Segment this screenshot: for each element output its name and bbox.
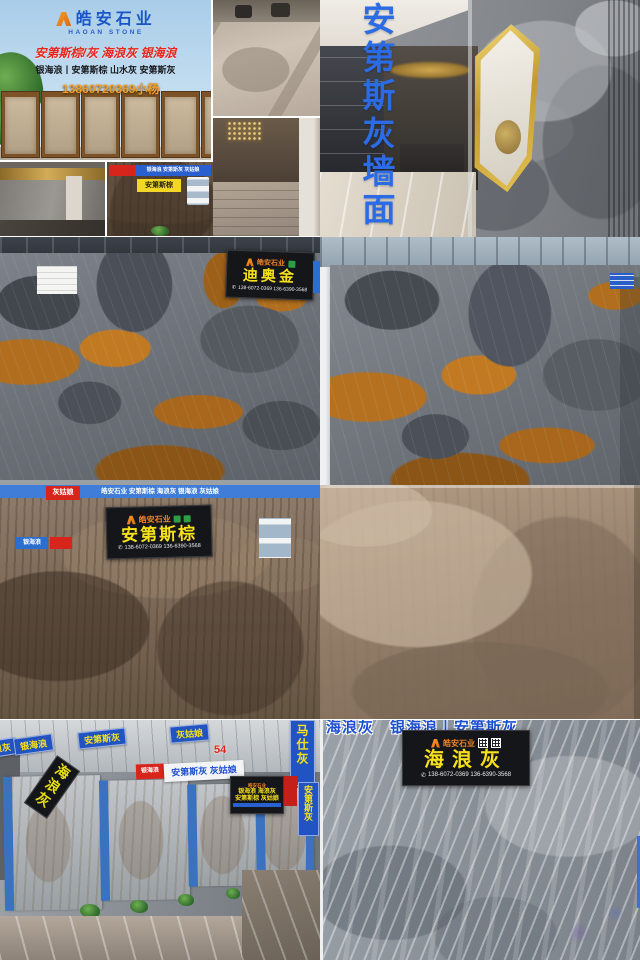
photo-seam	[320, 720, 323, 960]
phone-icon: ✆	[232, 285, 236, 291]
corridor-floor	[320, 172, 476, 237]
sign-footer-strip	[233, 803, 281, 807]
andes-grey-wall-photo: 安第斯灰墙面	[320, 0, 640, 237]
badge-icon	[174, 515, 181, 522]
red-tag-small	[50, 537, 72, 549]
blue-banner: 银海浪 安第斯灰 灰姑娘	[135, 165, 211, 176]
phone-icon: ✆	[118, 545, 123, 551]
sign-phone: 138-6072-0369 136-6390-3568	[125, 543, 201, 551]
stall-number: 54	[214, 744, 226, 756]
badge-icon	[288, 260, 295, 267]
andes-brown-slab-photo: 皓安石业 安第斯棕 海浪灰 银海浪 灰姑娘 灰姑娘 皓安石业 安第斯棕 ✆ 13…	[0, 485, 320, 719]
slab-right-shadow	[620, 277, 640, 485]
display-frames-row	[2, 92, 211, 157]
haoan-logo-icon	[56, 12, 71, 26]
grooved-stone-strip	[608, 0, 640, 237]
blue-sign-small	[608, 271, 636, 291]
haoan-logo-icon	[246, 258, 254, 266]
mirror-reflection	[495, 120, 522, 155]
dior-gold-slab-right-photo	[320, 237, 640, 485]
brand-name-cn: 皓安石业	[76, 11, 156, 28]
qr-code-icon	[478, 738, 488, 748]
chair	[271, 3, 290, 17]
yellow-tag: 安第斯棕	[137, 179, 181, 192]
badge-icon	[184, 515, 191, 522]
grey-marble-wall	[0, 180, 105, 220]
slab-top-edge	[320, 485, 640, 488]
haoan-logo-icon	[127, 515, 136, 524]
display-frame	[2, 92, 39, 157]
furniture-strip	[213, 0, 320, 22]
sea-wave-sign: 皓安石业 海浪灰 ✆ 138-6072-0369 136-6390-3568	[402, 730, 530, 786]
blue-vertical-tag: 安第斯灰	[298, 782, 319, 836]
red-vertical-tag	[284, 776, 297, 806]
red-tag	[109, 165, 135, 176]
plant	[226, 888, 240, 899]
product-line-black: 银海浪丨安第斯棕 山水灰 安第斯灰	[4, 63, 207, 76]
dark-floor	[0, 220, 105, 236]
dior-gold-sign: 皓安石业 迪奥金 ✆ 138-6072-0369 136-6390-3568	[225, 249, 315, 300]
display-frame	[82, 92, 119, 157]
info-card	[256, 515, 294, 561]
marble-lobby-floor	[213, 182, 299, 236]
storefront-photo: 皓安石业 HAOAN STONE 安第斯棕/灰 海浪灰 银海浪 银海浪丨安第斯棕…	[0, 0, 211, 160]
sign-phone: 138-6072-0369 136-6390-3568	[428, 772, 511, 778]
display-frame	[162, 92, 199, 157]
product-list-sign: 皓安石业 银海浪 海浪灰 安第斯棕 灰姑娘	[230, 776, 284, 814]
chandelier	[227, 121, 261, 141]
sign-phone: 138-6072-0369 136-6390-3568	[238, 285, 307, 293]
vertical-caption: 安第斯灰墙面	[360, 2, 393, 237]
interior-niche	[384, 46, 478, 190]
phone-icon: ✆	[421, 772, 426, 779]
sign-product-name: 海浪灰	[403, 750, 529, 771]
info-card	[187, 177, 209, 205]
dior-gold-slab-left-photo: 皓安石业 迪奥金 ✆ 138-6072-0369 136-6390-3568	[0, 237, 320, 485]
brown-slab-thumb-photo: 银海浪 安第斯灰 灰姑娘 安第斯棕	[107, 162, 213, 236]
display-frame	[122, 92, 159, 157]
adjacent-slab-edge	[320, 267, 330, 485]
gold-ceiling-band	[0, 168, 105, 180]
sea-wave-grey-photo: 海浪灰 银海浪丨安第斯灰 皓安石业 海浪灰 ✆ 138-6072-0369 13…	[320, 720, 640, 960]
purple-reflection	[566, 924, 592, 942]
tan-slab-photo	[320, 485, 640, 719]
red-tag: 灰姑娘	[46, 486, 80, 500]
mirror-glass	[475, 29, 534, 187]
hanging-banner: 灰姑娘	[169, 723, 209, 743]
purple-reflection	[606, 906, 626, 920]
chair	[235, 5, 252, 18]
spec-sticker	[34, 263, 80, 297]
blue-tag-edge	[313, 261, 320, 293]
qr-code-icon	[491, 738, 501, 748]
plant	[178, 894, 194, 906]
plant-leaves	[151, 226, 169, 236]
showroom-slabs-photo: 海浪灰 银海浪 安第斯灰 灰姑娘 马仕灰 54 海浪灰 银海浪 安第斯灰 灰姑娘…	[0, 720, 320, 960]
brand-name-en: HAOAN STONE	[28, 29, 184, 36]
sign-brand: 皓安石业	[139, 513, 171, 525]
white-pillar	[66, 176, 82, 222]
product-line-red: 安第斯棕/灰 海浪灰 银海浪	[8, 44, 203, 61]
slab-right-shade	[634, 485, 640, 719]
display-slab	[99, 779, 190, 901]
sign-brand: 皓安石业	[443, 738, 475, 749]
marble-floor-photo	[213, 0, 320, 116]
andes-brown-sign: 皓安石业 安第斯棕 ✆ 138-6072-0369 136-6390-3568	[105, 505, 212, 560]
gold-vein-slab	[330, 265, 640, 485]
haoan-logo: 皓安石业 HAOAN STONE	[28, 5, 184, 36]
lobby-photo	[213, 118, 320, 236]
plant	[130, 900, 148, 913]
sign-line2: 安第斯棕 灰姑娘	[231, 796, 283, 802]
tan-slab	[320, 485, 640, 719]
sign-product-name: 迪奥金	[227, 268, 313, 287]
interior-gold-accent-photo	[0, 162, 105, 236]
display-frame	[202, 92, 211, 157]
sign-product-name: 安第斯棕	[107, 524, 211, 545]
blue-tag: 银海浪	[16, 537, 48, 549]
stone-showroom-collage: 皓安石业 HAOAN STONE 安第斯棕/灰 海浪灰 银海浪 银海浪丨安第斯棕…	[0, 0, 640, 960]
haoan-logo-icon	[431, 739, 440, 748]
door-frame	[299, 118, 320, 236]
wall-corner-highlight	[468, 0, 472, 237]
red-tag: 银海浪	[136, 764, 165, 780]
display-frame	[42, 92, 79, 157]
gold-light-streak	[390, 62, 470, 78]
glossy-floor-right	[242, 870, 320, 960]
phone-number: 13860720369小杨	[62, 80, 159, 97]
